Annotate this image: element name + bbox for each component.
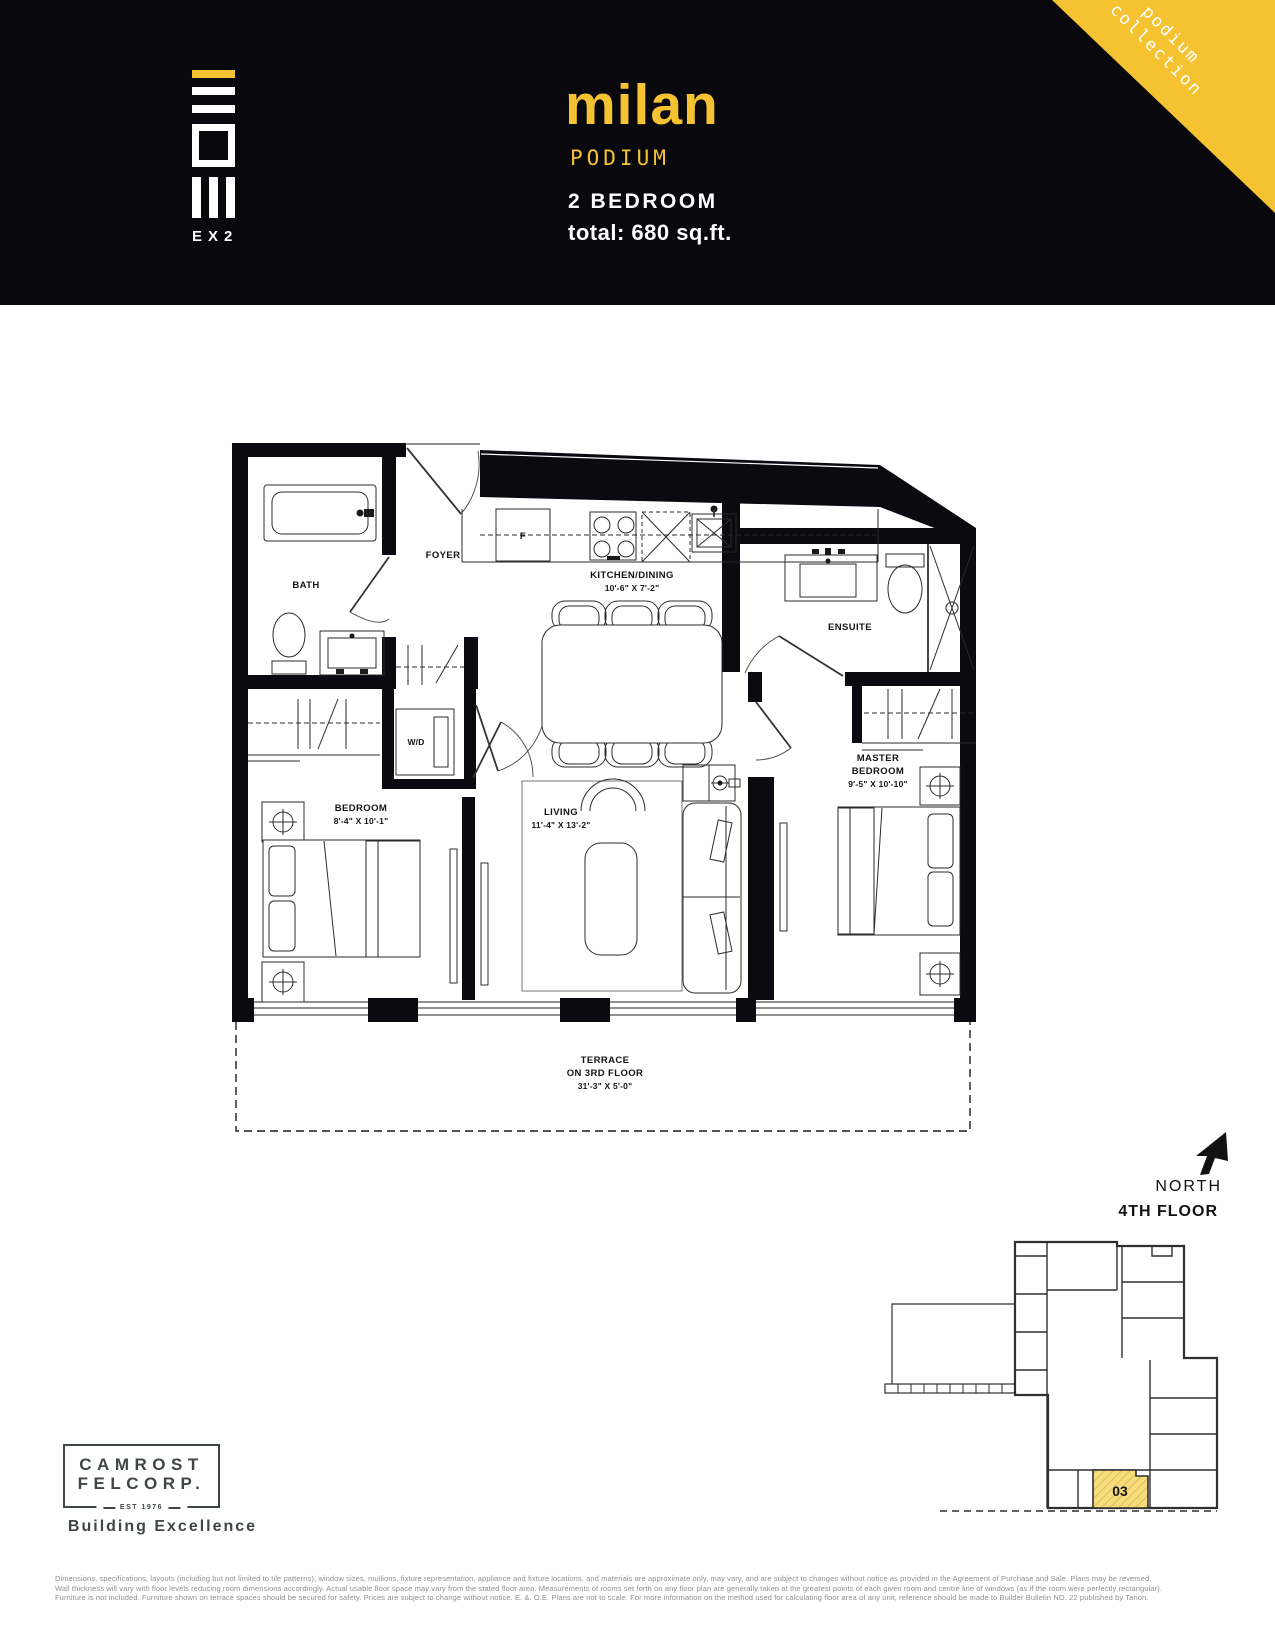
- room-label-living: LIVING: [544, 807, 578, 818]
- room-label-ensuite: ENSUITE: [828, 622, 872, 633]
- armchair: [581, 779, 645, 811]
- builder-logo: CAMROST FELCORP. EST 1976: [63, 1444, 220, 1508]
- room-dims-kitchen-dining: 10'-6" X 7'-2": [605, 583, 660, 593]
- brand-name: EX2: [192, 228, 238, 245]
- bedroom-tv: [450, 849, 457, 983]
- builder-est-badge: EST 1976: [96, 1504, 187, 1511]
- room-label-master-2: BEDROOM: [852, 766, 904, 777]
- builder-tagline: Building Excellence: [55, 1518, 270, 1536]
- bedroom-nightstand-top: [262, 802, 304, 842]
- ensuite-toilet: [886, 554, 924, 613]
- header-band: EX2 milan PODIUM 2 BEDROOM total: 680 sq…: [0, 0, 1275, 305]
- room-label-kitchen-dining: KITCHEN/DINING: [590, 570, 674, 581]
- logo-white-bar-1: [192, 87, 235, 95]
- ensuite-sink: [785, 548, 877, 601]
- dining-table: [542, 625, 722, 743]
- room-dims-living: 11'-4" X 13'-2": [531, 820, 590, 830]
- room-label-terrace-2: ON 3RD FLOOR: [567, 1068, 644, 1079]
- floor-plan-drawing: BATH FOYER KITCHEN/DINING 10'-6" X 7'-2"…: [228, 425, 988, 1135]
- logo-white-bar-2: [192, 105, 235, 113]
- laundry-door: [476, 705, 545, 771]
- total-area: total: 680 sq.ft.: [568, 220, 732, 246]
- bedroom-bed: [263, 840, 420, 957]
- logo-vbar-3: [226, 177, 235, 218]
- room-label-bath: BATH: [292, 580, 319, 591]
- stove: [590, 512, 636, 560]
- coffee-table: [585, 843, 637, 955]
- unit-name-title: milan: [565, 72, 719, 138]
- north-arrow-icon: [1190, 1130, 1236, 1178]
- room-label-wd: W/D: [407, 737, 424, 747]
- master-nightstand-top: [920, 767, 960, 805]
- disclaimer-line-1: Dimensions, specifications, layouts (inc…: [55, 1574, 1205, 1584]
- foyer-closet: [396, 645, 464, 685]
- bedroom-closet: [248, 699, 380, 761]
- floor-plan: BATH FOYER KITCHEN/DINING 10'-6" X 7'-2"…: [228, 425, 988, 1135]
- bedroom-count: 2 BEDROOM: [568, 190, 718, 214]
- bedroom-nightstand-bottom: [262, 962, 304, 1002]
- disclaimer-text: Dimensions, specifications, layouts (inc…: [55, 1574, 1205, 1603]
- bath-sink: [320, 631, 384, 675]
- side-table: [683, 765, 740, 801]
- unit-number-label: 03: [1112, 1483, 1128, 1499]
- building-outline: [885, 1242, 1217, 1508]
- builder-name-line1: CAMROST: [65, 1455, 218, 1474]
- key-plan: 03: [870, 1238, 1230, 1523]
- floorplan-page: EX2 milan PODIUM 2 BEDROOM total: 680 sq…: [0, 0, 1275, 1650]
- room-label-master-1: MASTER: [857, 753, 900, 764]
- collection-subtitle: PODIUM: [570, 146, 670, 170]
- room-dims-terrace: 31'-3" X 5'-0": [578, 1081, 633, 1091]
- master-nightstand-bottom: [920, 953, 960, 995]
- key-plan-drawing: 03: [870, 1238, 1230, 1523]
- entry-door: [407, 448, 479, 514]
- master-bed: [838, 807, 960, 935]
- disclaimer-line-3: Furniture is not included. Furniture sho…: [55, 1593, 1205, 1603]
- builder-est-text: EST 1976: [120, 1504, 163, 1511]
- fridge-label: F: [520, 531, 526, 542]
- logo-square: [192, 124, 235, 167]
- room-label-terrace-1: TERRACE: [581, 1055, 630, 1066]
- room-dims-bedroom: 8'-4" X 10'-1": [334, 816, 389, 826]
- builder-name-line2: FELCORP.: [65, 1474, 218, 1493]
- dishwasher: [642, 512, 690, 562]
- bathtub: [264, 485, 376, 541]
- logo-yellow-bar: [192, 70, 235, 78]
- floor-label: 4TH FLOOR: [1062, 1203, 1218, 1221]
- room-label-foyer: FOYER: [426, 550, 461, 561]
- logo-vbar-2: [209, 177, 218, 218]
- master-closet: [862, 689, 976, 750]
- disclaimer-line-2: Wall thickness will vary with floor leve…: [55, 1584, 1205, 1594]
- master-tv: [780, 823, 787, 931]
- logo-vbar-1: [192, 177, 201, 218]
- room-dims-master: 9'-5" X 10'-10": [848, 779, 908, 789]
- sofa: [683, 803, 741, 993]
- ensuite-door: [745, 636, 843, 676]
- master-bedroom-door: [756, 702, 791, 760]
- room-label-bedroom: BEDROOM: [335, 803, 387, 814]
- bath-door: [350, 557, 389, 622]
- north-label: NORTH: [1112, 1178, 1222, 1196]
- washer-dryer: [396, 709, 454, 775]
- living-tv: [481, 863, 488, 985]
- bath-toilet: [272, 613, 306, 674]
